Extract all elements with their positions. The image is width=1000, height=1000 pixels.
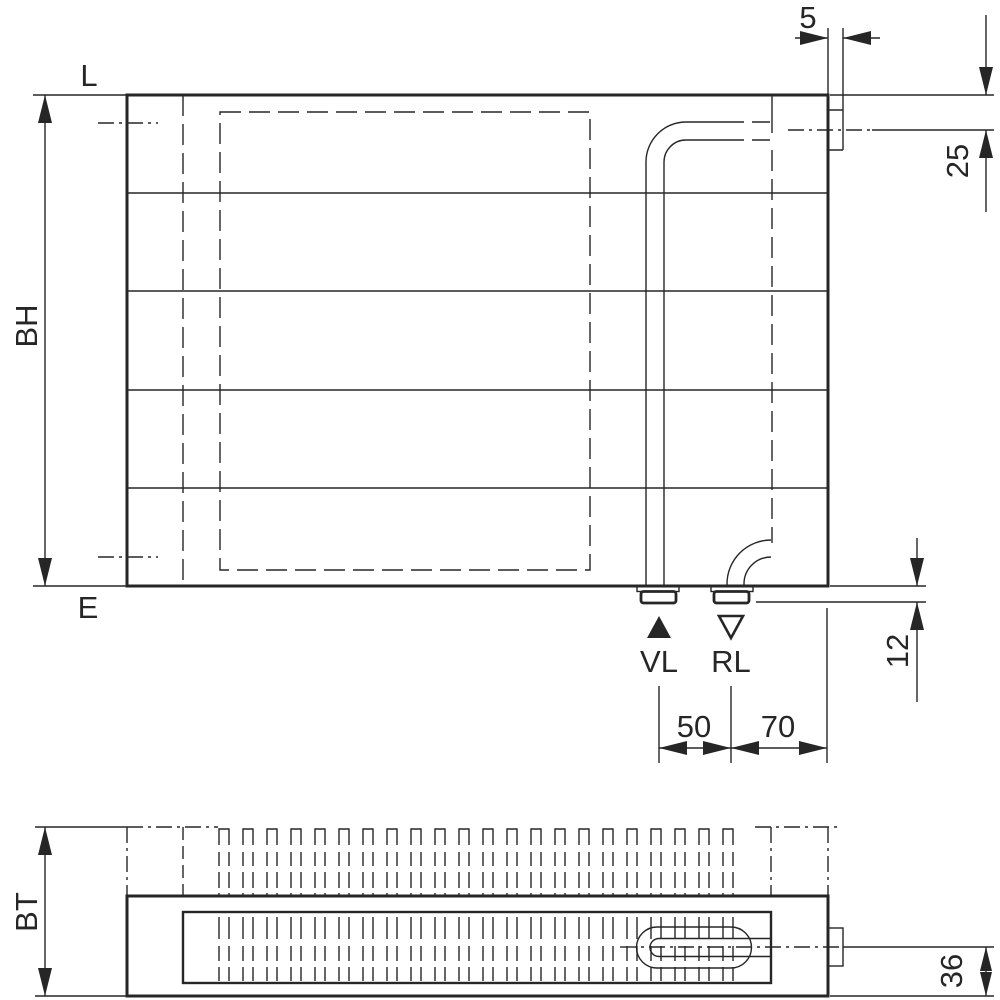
arrowhead-up-icon	[910, 602, 924, 630]
dim-connection-spacing: 50 70	[659, 608, 827, 763]
supply-stub	[637, 586, 679, 603]
radiator-outline	[127, 95, 828, 586]
return-stub-nut	[714, 592, 749, 604]
extension-lines-12	[756, 586, 926, 602]
dim-text-12: 12	[880, 634, 915, 668]
extension-lines-25	[830, 95, 994, 130]
label-e: E	[78, 590, 99, 625]
dim-text-36: 36	[934, 954, 969, 988]
label-bt: BT	[9, 892, 44, 932]
return-pipe-bend-outer	[727, 540, 771, 586]
arrowhead-up-icon	[38, 827, 52, 855]
drawing-svg: 5 25 BH L E	[0, 0, 1000, 1000]
arrowhead-left-icon	[843, 31, 871, 45]
dim-build-height: BH L E	[9, 58, 127, 625]
arrowhead-up-icon	[979, 130, 993, 158]
return-pipe-bend-inner	[744, 557, 771, 586]
radiator-technical-drawing: 5 25 BH L E	[0, 0, 1000, 1000]
return-flow-icon	[719, 616, 743, 638]
arrowhead-left-icon	[731, 741, 759, 755]
supply-pipe-inner	[664, 140, 770, 586]
convector-outline-dashed	[220, 112, 590, 570]
dim-bottom-stub-height: 12	[756, 538, 926, 702]
supply-stub-nut	[641, 592, 676, 604]
arrowhead-down-icon	[910, 558, 924, 586]
dim-pipe-center-height: 36	[830, 947, 994, 996]
dim-build-depth: BT	[9, 827, 127, 996]
pipe-region-hidden-box	[755, 827, 838, 896]
arrowhead-up-icon	[38, 95, 52, 123]
front-view: 5 25 BH L E	[9, 0, 994, 763]
dim-tab-width: 5	[795, 0, 880, 45]
panel-seam-lines	[127, 193, 828, 488]
label-bh: BH	[9, 304, 44, 347]
top-connection-tab	[828, 28, 843, 150]
dim-text-70: 70	[761, 709, 795, 744]
arrowhead-down-icon	[979, 67, 993, 95]
arrowhead-right-icon	[799, 741, 827, 755]
dim-text-25: 25	[940, 144, 975, 178]
arrowhead-down-icon	[980, 972, 992, 996]
extension-lines-bh	[33, 95, 127, 586]
dim-text-5: 5	[799, 0, 816, 35]
return-stub	[711, 586, 753, 603]
label-supply: VL	[640, 644, 678, 679]
label-l: L	[80, 58, 97, 93]
label-return: RL	[711, 644, 751, 679]
convector-fins-top	[219, 829, 733, 896]
arrowhead-down-icon	[38, 968, 52, 996]
dim-top-tapping-offset: 25	[830, 15, 994, 212]
arrowhead-up-icon	[980, 947, 992, 971]
arrowhead-down-icon	[38, 558, 52, 586]
dim-text-50: 50	[677, 709, 711, 744]
supply-flow-icon	[647, 616, 671, 638]
top-view: BT 36	[9, 827, 994, 996]
